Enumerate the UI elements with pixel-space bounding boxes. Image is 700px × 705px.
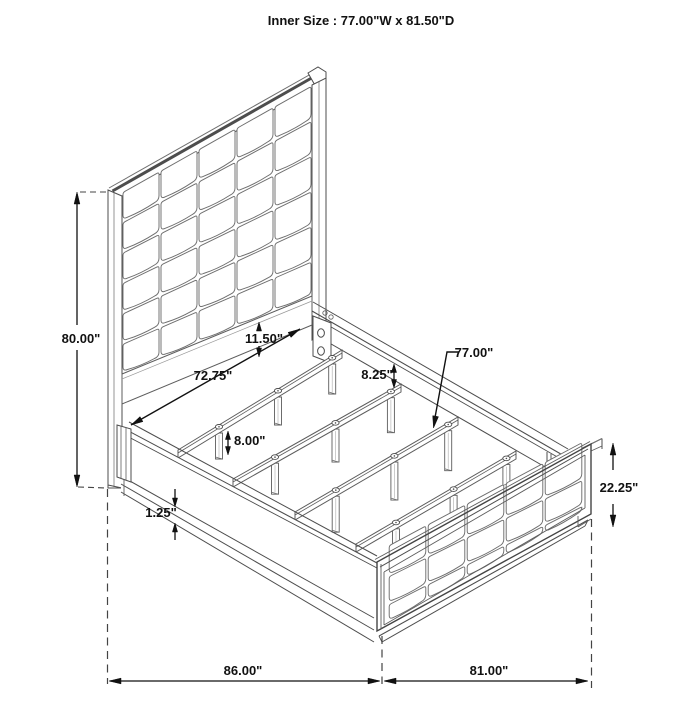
svg-text:72.75": 72.75" xyxy=(194,368,233,383)
svg-text:1.25": 1.25" xyxy=(145,505,176,520)
svg-text:77.00": 77.00" xyxy=(455,345,494,360)
svg-text:86.00": 86.00" xyxy=(224,663,263,678)
svg-text:Inner Size : 77.00"W x 81.50"D: Inner Size : 77.00"W x 81.50"D xyxy=(268,13,454,28)
svg-text:81.00": 81.00" xyxy=(470,663,509,678)
svg-text:80.00": 80.00" xyxy=(62,331,101,346)
svg-text:8.00": 8.00" xyxy=(234,433,265,448)
svg-text:22.25": 22.25" xyxy=(600,480,639,495)
svg-text:8.25": 8.25" xyxy=(361,367,392,382)
svg-text:11.50": 11.50" xyxy=(245,331,283,346)
